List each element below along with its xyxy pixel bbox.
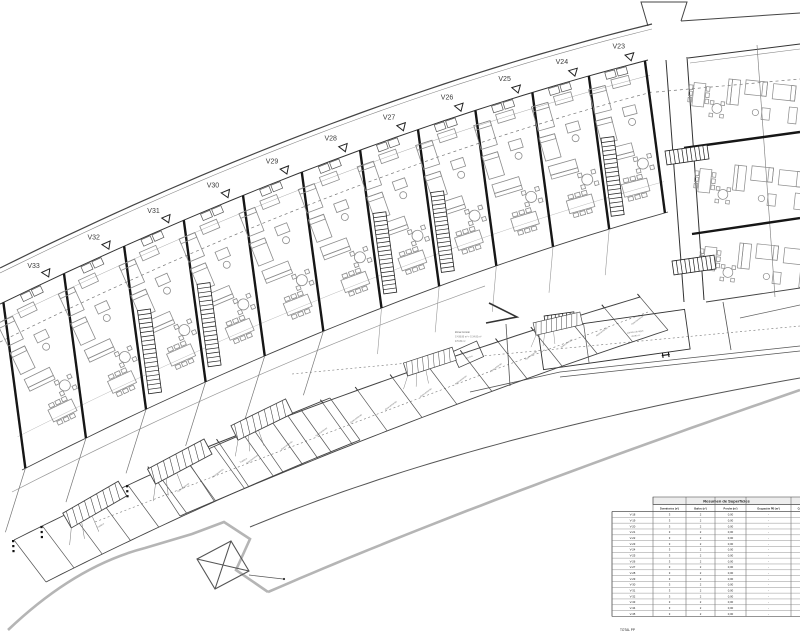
furniture-shape — [525, 202, 530, 207]
party-wall — [692, 218, 800, 234]
ramps — [54, 312, 585, 548]
furniture-shape — [367, 258, 372, 263]
furniture-shape — [41, 342, 50, 351]
furniture-shape — [265, 269, 293, 283]
furniture-shape — [334, 200, 349, 213]
furniture-shape — [633, 157, 638, 162]
furniture-shape — [539, 134, 556, 143]
ramp-fan-line — [257, 430, 266, 445]
boundary-notch — [641, 2, 687, 26]
table-cell: 3 — [669, 513, 671, 517]
unit-label: V23 — [613, 43, 626, 50]
furniture-shape — [127, 346, 132, 351]
furniture-shape — [355, 268, 361, 273]
wheel-stop-tick — [637, 294, 640, 297]
table-row-label: V-33 — [630, 600, 636, 604]
furniture-shape — [568, 194, 574, 199]
table-cell: 0,00 — [728, 594, 734, 598]
furniture-shape — [482, 152, 504, 180]
furniture-shape — [772, 84, 796, 102]
furniture-shape — [773, 246, 779, 261]
furniture-shape — [174, 324, 179, 329]
storage-divider — [214, 446, 244, 488]
parking-stall-divider — [253, 429, 283, 472]
furniture-shape — [59, 391, 64, 396]
table-cell: 0,00 — [728, 583, 734, 587]
furniture-shape — [521, 190, 526, 195]
furniture-shape — [621, 178, 649, 197]
table-row-label: V-21 — [630, 530, 636, 534]
furniture-shape — [406, 249, 412, 254]
furniture-shape — [162, 286, 171, 295]
leader-dot — [283, 578, 285, 580]
garden-wall — [303, 331, 323, 395]
table-cell: 3 — [669, 583, 671, 587]
furniture-shape — [524, 228, 530, 233]
retaining-hatch-dot — [40, 526, 42, 528]
table-row: V-27320,00- — [630, 565, 769, 569]
ramp-hatch — [396, 347, 461, 391]
furniture-shape — [586, 209, 592, 214]
table-cell: 2 — [700, 565, 702, 569]
table-row: V-31320,00- — [630, 588, 769, 592]
unit-label: V31 — [147, 208, 160, 215]
table-cell: - — [768, 530, 769, 534]
table-row-label: V-22 — [630, 536, 636, 540]
furniture-shape — [720, 277, 724, 281]
boundary-outer — [268, 390, 800, 592]
table-cell: 0,00 — [728, 536, 734, 540]
wheel-stop-tick — [355, 387, 357, 390]
furniture-group — [686, 74, 799, 126]
furniture-group — [692, 160, 800, 212]
furniture-shape — [577, 173, 582, 178]
stair-hatch — [373, 212, 397, 294]
unit-label: V25 — [498, 76, 511, 83]
furniture-shape — [636, 168, 641, 173]
wheel-stop-tick — [602, 305, 605, 308]
storage-divider — [243, 434, 273, 476]
furniture-shape — [354, 262, 359, 267]
furniture-shape — [716, 186, 720, 190]
table-cell: 3 — [669, 519, 671, 523]
table-cell: 3 — [669, 612, 671, 616]
furniture-shape — [177, 323, 192, 338]
table-cell: 3 — [669, 530, 671, 534]
table-cell: 2 — [700, 542, 702, 546]
furniture-shape — [752, 109, 759, 116]
furniture-shape — [581, 184, 586, 189]
furniture-shape — [630, 176, 636, 181]
garden-wall — [186, 382, 206, 446]
table-row-label: V-26 — [630, 559, 636, 563]
furniture-shape — [531, 226, 537, 231]
furniture-shape — [731, 278, 735, 282]
table-row-label: V-24 — [630, 548, 636, 552]
retaining-hatch-dot — [126, 485, 128, 487]
furniture-shape — [594, 181, 599, 186]
storage-divider — [301, 410, 331, 452]
table-cell: - — [768, 519, 769, 523]
table-cell: 0,00 — [728, 513, 734, 517]
storage-divider — [128, 485, 159, 527]
furniture-shape — [118, 350, 133, 365]
table-column-header: Baños (nº) — [694, 508, 707, 511]
table-column-header: Ocupación PB (m²) — [757, 507, 780, 511]
furniture-shape — [482, 216, 487, 221]
parking-stall-divider — [393, 378, 423, 418]
table-row-label: V-18 — [630, 513, 636, 517]
table-cell: 2 — [700, 554, 702, 558]
furniture-shape — [392, 178, 407, 191]
furniture-shape — [580, 210, 586, 215]
furniture-shape — [790, 86, 796, 102]
furniture-shape — [450, 157, 465, 170]
furniture-shape — [54, 380, 59, 385]
furniture-shape — [291, 293, 297, 299]
furniture-shape — [222, 260, 231, 269]
furniture-shape — [457, 170, 466, 179]
furniture-shape — [139, 245, 159, 260]
furniture-shape — [551, 168, 579, 179]
table-cell: 0,00 — [728, 530, 734, 534]
furniture-shape — [119, 259, 145, 289]
furniture-shape — [179, 233, 197, 244]
table-cell: 3 — [669, 606, 671, 610]
furniture-shape — [495, 185, 523, 197]
ramp-fan-line — [76, 522, 89, 539]
furniture-shape — [296, 285, 301, 290]
furniture-shape — [348, 270, 354, 275]
furniture-shape — [233, 299, 238, 304]
furniture-shape — [716, 263, 720, 268]
parking-stall-label: Aparcamiento — [419, 387, 433, 398]
furniture-shape — [72, 385, 77, 390]
table-cell: 3 — [669, 542, 671, 546]
furniture-shape — [323, 246, 351, 260]
furniture-shape — [751, 166, 774, 183]
table-cell: - — [768, 542, 769, 546]
furniture-shape — [462, 229, 468, 234]
furniture-shape — [399, 251, 405, 256]
table-cell: 2 — [700, 559, 702, 563]
parking-stall-divider — [358, 390, 388, 431]
furniture-shape — [320, 238, 349, 256]
furniture-shape — [399, 191, 408, 200]
furniture-shape — [191, 330, 196, 335]
furniture-shape — [88, 347, 115, 362]
table-cell: 3 — [669, 571, 671, 575]
ramp-fan-line — [552, 331, 556, 344]
parking-stall-divider — [640, 297, 668, 330]
furniture-shape — [591, 169, 596, 174]
unit-marker-icon — [42, 269, 53, 279]
garden-line — [18, 182, 664, 437]
stair-hatch — [431, 191, 455, 273]
furniture-shape — [737, 243, 743, 268]
table-cell: 2 — [700, 513, 702, 517]
parking-stall-divider — [604, 308, 632, 342]
table-cell: 0,00 — [728, 524, 734, 528]
unit-marker-icon — [569, 68, 580, 77]
road-upper-edge — [0, 24, 652, 268]
zona-comun-text: 470.80 m² — [455, 340, 466, 343]
inst-box — [452, 341, 484, 368]
furniture-shape — [455, 230, 484, 250]
furniture-shape — [709, 113, 713, 117]
ac-units — [20, 286, 43, 302]
ac-box — [201, 210, 213, 220]
furniture-shape — [692, 83, 706, 107]
furniture-shape — [281, 236, 290, 245]
furniture-shape — [179, 335, 184, 340]
boundary-outer — [8, 522, 268, 630]
table-cell: - — [768, 536, 769, 540]
party-wall — [532, 92, 553, 246]
ramp-outline — [403, 347, 456, 376]
furniture-shape — [706, 87, 710, 92]
furniture-shape — [482, 152, 499, 161]
table-row-label: V-20 — [630, 524, 636, 528]
furniture-shape — [246, 293, 251, 298]
parking-stall-divider — [533, 330, 562, 366]
table-cell: - — [768, 571, 769, 575]
table-cell: 3 — [669, 548, 671, 552]
furniture-shape — [721, 264, 725, 268]
furniture-shape — [641, 193, 647, 198]
block-bottom-edge — [706, 288, 800, 302]
table-row-label: V-29 — [630, 577, 636, 581]
furniture-shape — [710, 100, 714, 104]
table-row: V-24320,00- — [630, 548, 769, 552]
table-cell: 2 — [700, 577, 702, 581]
table-title: Resumen de Superficies — [703, 498, 750, 503]
ramp-fan-line — [412, 373, 421, 387]
furniture-shape — [468, 209, 482, 223]
ramp-fan-line — [400, 376, 411, 389]
furniture-shape — [469, 226, 475, 231]
furniture-shape — [357, 161, 375, 171]
table-cell: 0,00 — [728, 565, 734, 569]
storage-divider — [42, 526, 74, 568]
furniture-shape — [727, 188, 731, 192]
furniture-shape — [525, 208, 531, 213]
furniture-shape — [405, 269, 411, 274]
furniture-shape — [732, 266, 736, 270]
table-row-label: V-25 — [630, 554, 636, 558]
table-cell: - — [768, 583, 769, 587]
furniture-shape — [350, 251, 355, 256]
furniture-shape — [535, 186, 540, 191]
furniture-shape — [179, 233, 204, 263]
furniture-shape — [57, 378, 72, 393]
furniture-shape — [478, 205, 483, 210]
table-column-header: Dormitorios (nº) — [660, 508, 679, 511]
furniture-shape — [411, 241, 416, 246]
ramp-fan-line — [424, 370, 430, 383]
furniture-shape — [17, 302, 37, 318]
furniture-shape — [623, 178, 629, 183]
furniture-shape — [573, 212, 579, 217]
furniture-shape — [596, 117, 613, 126]
furniture-shape — [291, 274, 296, 279]
walkway — [470, 372, 560, 392]
furniture-shape — [295, 273, 309, 287]
furniture-shape — [132, 356, 137, 361]
table-cell: 3 — [669, 600, 671, 604]
furniture-shape — [407, 230, 412, 235]
furniture-shape — [131, 289, 148, 300]
table-cell: 0,00 — [728, 600, 734, 604]
table-row: V-19320,00- — [630, 519, 769, 523]
unit-label: V29 — [266, 158, 279, 165]
furniture-shape — [349, 291, 355, 296]
unit-label: V33 — [27, 263, 40, 270]
table-row-label: V-28 — [630, 571, 636, 575]
table-row-label: V-27 — [630, 565, 636, 569]
retaining-hatch-dot — [126, 490, 128, 492]
furniture-shape — [518, 230, 524, 235]
table-cell: 2 — [700, 571, 702, 575]
table-cell: 0,00 — [728, 577, 734, 581]
furniture-shape — [628, 118, 637, 127]
furniture-shape — [238, 310, 243, 315]
furniture-shape — [514, 151, 523, 160]
unit-label: V32 — [88, 235, 101, 242]
wheel-stop-tick — [495, 339, 497, 342]
site-plan-drawing: V33V32V31V30V29V28V27V26V25V24V23Zona Co… — [0, 0, 800, 640]
furniture-shape — [102, 313, 111, 322]
furniture-shape — [720, 114, 724, 118]
furniture-shape — [28, 375, 55, 391]
furniture-shape — [732, 165, 738, 190]
party-wall — [243, 195, 265, 355]
ramp-hatch — [139, 439, 220, 504]
parking-stall-label: Aparcamiento — [525, 350, 539, 361]
garden-wall — [435, 286, 439, 332]
table-cell: 3 — [669, 559, 671, 563]
furniture-shape — [215, 247, 230, 260]
garden-wall — [126, 409, 146, 473]
furniture-shape — [571, 134, 580, 143]
furniture-shape — [456, 231, 462, 236]
ramp-hatch — [54, 481, 135, 547]
ramp-fan-line — [243, 435, 255, 451]
furniture-shape — [647, 153, 652, 158]
unit-marker-icon — [512, 85, 523, 94]
leader-arrow-icon — [486, 303, 517, 323]
table-column-header: Porche (m²) — [724, 507, 738, 511]
table-row: V-23320,00- — [630, 542, 769, 546]
furniture-shape — [298, 311, 304, 317]
ramp-fan-line — [229, 440, 243, 456]
furniture-shape — [95, 301, 111, 315]
wheel-stop-tick — [531, 327, 533, 330]
furniture-shape — [637, 174, 643, 179]
furniture-shape — [715, 199, 719, 203]
furniture-shape — [291, 314, 297, 320]
furniture-shape — [462, 249, 468, 254]
furniture-shape — [566, 194, 595, 214]
parking-stall-label: Aparcamiento — [177, 482, 191, 493]
furniture-shape — [622, 105, 637, 117]
zona-comun-text: S 436.80 m² + S 34.00 m² — [455, 335, 482, 338]
furniture-shape — [419, 264, 425, 269]
garden-wall — [605, 229, 609, 275]
table-cell: - — [768, 606, 769, 610]
furniture-shape — [694, 177, 698, 182]
furniture-shape — [783, 248, 800, 266]
table-row: V-30320,00- — [630, 583, 769, 587]
furniture-shape — [10, 346, 35, 375]
furniture-shape — [468, 247, 474, 252]
furniture-shape — [512, 212, 518, 217]
furniture-shape — [716, 257, 720, 262]
parking-stall-divider — [498, 342, 527, 379]
table-cell: - — [768, 559, 769, 563]
furniture-shape — [712, 173, 716, 178]
furniture-shape — [71, 317, 88, 328]
furniture-shape — [67, 374, 72, 379]
parking-stall-label: Aparcamiento — [595, 326, 609, 337]
furniture-shape — [636, 157, 649, 170]
furniture-shape — [353, 250, 367, 264]
table-row: V-32320,00- — [630, 594, 769, 598]
table-cell: 0,00 — [728, 554, 734, 558]
table-row: V-34320,00- — [630, 606, 769, 610]
furniture-shape — [260, 194, 280, 209]
table-cell: - — [768, 600, 769, 604]
furniture-shape — [305, 269, 310, 274]
zona-comun-text: Zona Común — [455, 330, 471, 334]
furniture-shape — [508, 138, 523, 150]
retaining-hatch-dot — [41, 531, 43, 533]
leader-line — [249, 575, 283, 579]
table-cell: - — [768, 588, 769, 592]
furniture-shape — [275, 223, 290, 236]
furniture-shape — [262, 261, 291, 280]
furniture-shape — [796, 172, 800, 188]
furniture-shape — [425, 171, 442, 181]
crossed-box-symbol — [197, 541, 285, 589]
parking-stall-divider — [219, 442, 249, 486]
furniture-shape — [538, 198, 543, 203]
furniture-shape — [78, 273, 98, 289]
table-cell: 0,00 — [728, 548, 734, 552]
furniture-shape — [297, 291, 303, 297]
furniture-shape — [711, 179, 715, 184]
furniture-shape — [721, 102, 725, 106]
storage-divider — [14, 540, 46, 582]
furniture-shape — [475, 244, 481, 249]
table-row-label: V-34 — [630, 606, 636, 610]
furniture-shape — [250, 304, 255, 309]
ac-box — [81, 263, 93, 274]
table-cell: 0,00 — [728, 542, 734, 546]
table-cell: 0,00 — [728, 559, 734, 563]
boundary-top-right — [681, 13, 800, 21]
table-row-label: V-32 — [630, 594, 636, 598]
table-row-label: V-23 — [630, 542, 636, 546]
storage-band: TrasteroTrastero — [12, 398, 360, 582]
unit-marker-icon — [280, 166, 291, 176]
unit-label: V24 — [556, 59, 569, 66]
stair-outline — [373, 212, 397, 294]
unit-label: V27 — [383, 114, 396, 121]
party-wall — [645, 61, 665, 213]
table-row: V-21320,00- — [630, 530, 769, 534]
table-cell: 2 — [700, 588, 702, 592]
